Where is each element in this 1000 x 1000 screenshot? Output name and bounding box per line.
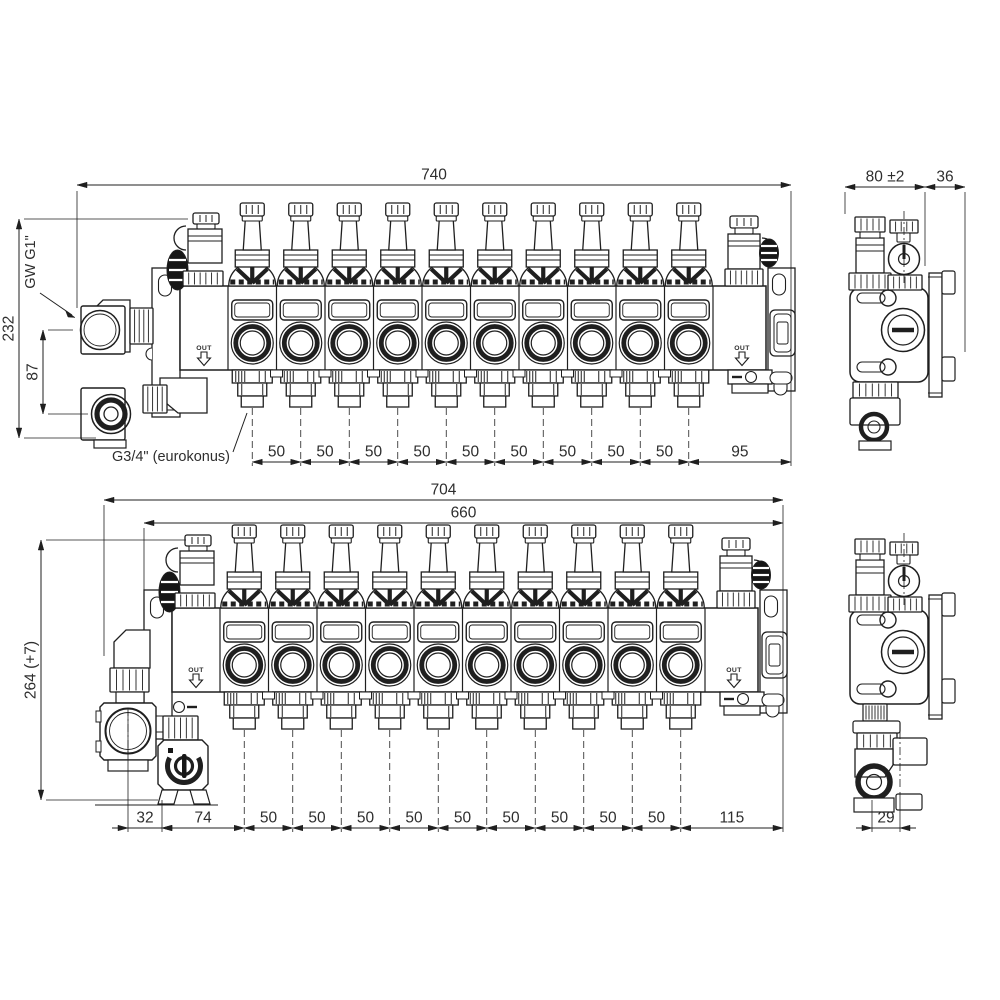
dim-overall-height-bottom: 264 (+7) [23, 641, 40, 699]
out-label: OUT [734, 345, 750, 352]
dim-port-offset: 87 [25, 363, 42, 380]
dim-overall-width-bottom: 704 [431, 482, 457, 499]
dim-spacing-top-2: 50 [316, 444, 334, 461]
dim-mounting-width: 660 [451, 505, 477, 522]
out-label: OUT [196, 345, 212, 352]
out-label: OUT [188, 667, 204, 674]
left-end-valve [167, 213, 223, 290]
dim-spacing-bottom-7: 50 [551, 810, 569, 827]
view-side-top [849, 211, 955, 450]
dim-spacing-bottom-1: 50 [260, 810, 278, 827]
dim-right-end-top: 95 [731, 444, 748, 461]
dim-spacing-top-7: 50 [559, 444, 577, 461]
view-front-top: OUTOUT [81, 203, 796, 466]
dim-overall-width-top: 740 [421, 167, 447, 184]
dim-spacing-top-8: 50 [607, 444, 625, 461]
dim-spacing-top-5: 50 [462, 444, 480, 461]
dim-depth: 80 ±2 [866, 169, 905, 186]
view-front-bottom: OUTOUT [95, 525, 787, 832]
dim-spacing-top-3: 50 [365, 444, 383, 461]
dim-valve-offset: 74 [195, 810, 213, 827]
dim-spacing-top-9: 50 [656, 444, 674, 461]
dim-spacing-top-6: 50 [510, 444, 528, 461]
dim-spacing-top-4: 50 [413, 444, 431, 461]
left-end-valve [159, 535, 215, 612]
annotation-outlet-thread: G3/4" (eurokonus) [112, 449, 230, 465]
technical-drawing-page: OUTOUT OUTOUT 74023287GW G1"G3/4" (eurok… [0, 0, 1000, 1000]
dim-spacing-bottom-6: 50 [502, 810, 520, 827]
dim-spacing-bottom-4: 50 [405, 810, 423, 827]
dim-spacing-bottom-2: 50 [308, 810, 326, 827]
dim-right-end-bottom: 115 [720, 810, 745, 827]
dim-overall-height-top: 232 [1, 316, 18, 342]
dim-elbow-offset: 29 [877, 810, 894, 827]
dim-bracket-depth: 36 [936, 169, 953, 186]
dim-pump-offset: 32 [136, 810, 153, 827]
dim-spacing-bottom-5: 50 [454, 810, 472, 827]
manifold-dimensional-drawing: OUTOUT OUTOUT 74023287GW G1"G3/4" (eurok… [0, 0, 1000, 1000]
view-side-bottom [849, 533, 955, 812]
dim-spacing-bottom-3: 50 [357, 810, 375, 827]
dim-spacing-top-1: 50 [268, 444, 286, 461]
out-label: OUT [726, 667, 742, 674]
dim-spacing-bottom-8: 50 [599, 810, 617, 827]
dim-spacing-bottom-9: 50 [648, 810, 666, 827]
annotation-supply-thread: GW G1" [23, 235, 39, 288]
